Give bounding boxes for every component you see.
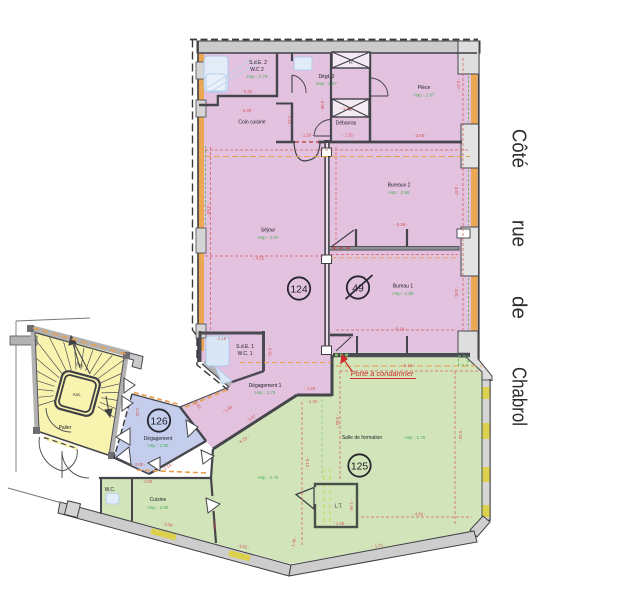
svg-text:- 0.90 -: - 0.90 - — [320, 98, 325, 112]
svg-text:Hsp : 2.87: Hsp : 2.87 — [316, 81, 337, 86]
svg-text:W.C.: W.C. — [105, 487, 116, 493]
svg-text:Séjour: Séjour — [261, 228, 276, 234]
svg-text:Dégt. 2: Dégt. 2 — [318, 74, 334, 80]
svg-text:Hsp : 2.75: Hsp : 2.75 — [258, 475, 279, 480]
svg-text:- 4.60 -: - 4.60 - — [206, 203, 211, 217]
svg-text:Coin cuisine: Coin cuisine — [238, 120, 265, 126]
svg-text:Cuisine: Cuisine — [150, 497, 167, 503]
svg-text:- 5.19 -: - 5.19 - — [393, 327, 407, 332]
svg-text:126: 126 — [150, 416, 168, 427]
svg-text:Hsp : 2.86: Hsp : 2.86 — [393, 291, 414, 296]
svg-text:- 3.81 -: - 3.81 - — [454, 286, 459, 300]
svg-text:- 5.19 -: - 5.19 - — [401, 363, 415, 368]
svg-text:- 0.32 -: - 0.32 - — [241, 89, 255, 94]
svg-text:- 1.20 -: - 1.20 - — [304, 386, 318, 391]
svg-text:- 4.84 -: - 4.84 - — [335, 414, 340, 428]
svg-text:Pièce: Pièce — [418, 85, 431, 91]
svg-text:W.C. 1: W.C. 1 — [237, 351, 252, 357]
svg-text:- 5.39 -: - 5.39 - — [240, 108, 254, 113]
svg-text:Palier: Palier — [59, 425, 72, 431]
svg-text:PL: PL — [349, 61, 353, 65]
svg-text:Hsp : 2.80: Hsp : 2.80 — [148, 443, 169, 448]
svg-text:- 2.19 -: - 2.19 - — [215, 336, 229, 341]
svg-text:Côté: Côté — [508, 129, 531, 168]
svg-text:Hsp : 2.75: Hsp : 2.75 — [405, 435, 426, 440]
svg-text:- 1.00 -: - 1.00 - — [141, 479, 155, 484]
svg-text:S.d.E. 1: S.d.E. 1 — [236, 344, 254, 350]
svg-text:- 1.43 -: - 1.43 - — [340, 106, 354, 111]
svg-text:125: 125 — [351, 461, 369, 472]
svg-text:- 3.87 -: - 3.87 - — [454, 184, 459, 198]
svg-text:- 0.91 -: - 0.91 - — [268, 345, 273, 359]
svg-text:- 5.36 -: - 5.36 - — [394, 222, 408, 227]
svg-text:- 2.00 -: - 2.00 - — [132, 462, 146, 467]
svg-text:W.C 2: W.C 2 — [250, 67, 264, 73]
svg-text:Bureau 1: Bureau 1 — [393, 284, 414, 290]
svg-text:- 1.20 -: - 1.20 - — [300, 133, 314, 138]
svg-text:- 5.27 -: - 5.27 - — [456, 78, 461, 92]
svg-text:Bureaux 2: Bureaux 2 — [388, 183, 411, 189]
svg-text:Hsp : 2.76: Hsp : 2.76 — [247, 74, 268, 79]
svg-text:- 1.52 -: - 1.52 - — [342, 133, 356, 138]
svg-text:S.d.E. 2: S.d.E. 2 — [249, 60, 267, 66]
svg-text:- 4.92 -: - 4.92 - — [412, 512, 426, 517]
svg-text:- 6.33 -: - 6.33 - — [458, 428, 463, 442]
svg-text:- 4.52 -: - 4.52 - — [253, 256, 267, 261]
svg-text:Hsp : 2.88: Hsp : 2.88 — [389, 190, 410, 195]
svg-text:- 1.34 -: - 1.34 - — [306, 399, 320, 404]
svg-text:Dégagement 1: Dégagement 1 — [249, 383, 282, 389]
svg-text:de: de — [508, 296, 531, 319]
svg-text:124: 124 — [290, 284, 308, 295]
svg-text:- 5.12 -: - 5.12 - — [305, 456, 310, 470]
svg-text:Hsp : 2.87: Hsp : 2.87 — [414, 93, 435, 98]
svg-text:Chabrol: Chabrol — [508, 367, 531, 426]
svg-text:- 1.46 -: - 1.46 - — [333, 521, 347, 526]
svg-text:rue: rue — [508, 220, 531, 247]
svg-text:Dégagement: Dégagement — [144, 436, 173, 442]
svg-text:- 1.56 -: - 1.56 - — [349, 499, 354, 513]
svg-text:Débarras: Débarras — [336, 121, 357, 127]
svg-text:L.T.: L.T. — [334, 504, 342, 510]
svg-text:Hsp : 2.97: Hsp : 2.97 — [258, 235, 279, 240]
svg-text:- 1.02 -: - 1.02 - — [135, 405, 140, 419]
svg-text:Salle de formation: Salle de formation — [342, 435, 383, 441]
svg-text:Hsp : 2.86: Hsp : 2.86 — [148, 505, 169, 510]
svg-text:- 3.65 -: - 3.65 - — [413, 133, 427, 138]
svg-text:Hsp : 2.75: Hsp : 2.75 — [255, 390, 276, 395]
svg-text:Porte à condamner: Porte à condamner — [351, 369, 414, 378]
svg-text:Asc.: Asc. — [73, 392, 82, 397]
svg-text:- 1.21 -: - 1.21 - — [287, 113, 292, 127]
